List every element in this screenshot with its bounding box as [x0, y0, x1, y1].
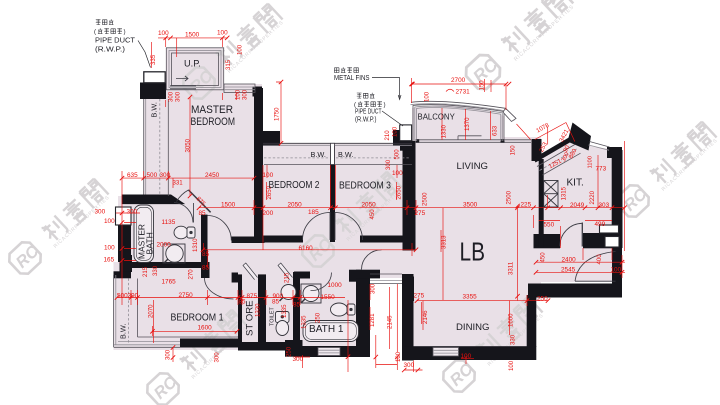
svg-text:1600: 1600 [508, 313, 515, 327]
svg-text:85: 85 [199, 210, 207, 217]
svg-text:2220: 2220 [589, 190, 596, 204]
svg-text:2731: 2731 [456, 88, 471, 95]
svg-text:1000: 1000 [328, 282, 343, 289]
svg-text:500: 500 [147, 172, 158, 179]
svg-text:275: 275 [415, 210, 426, 217]
svg-text:300: 300 [95, 208, 106, 215]
svg-text:KIT.: KIT. [567, 178, 584, 189]
svg-text:1281: 1281 [369, 313, 376, 327]
svg-text:773: 773 [596, 166, 607, 173]
svg-text:100: 100 [263, 172, 274, 179]
svg-text:1500: 1500 [221, 202, 236, 209]
svg-text:6160: 6160 [299, 245, 314, 252]
svg-text:2750: 2750 [179, 292, 194, 299]
svg-text:331: 331 [173, 180, 184, 187]
svg-text:B.W.: B.W. [150, 102, 159, 117]
svg-text:2145: 2145 [387, 315, 394, 329]
svg-text:275: 275 [414, 293, 425, 300]
svg-text:1135: 1135 [162, 219, 176, 226]
svg-text:1550: 1550 [321, 294, 336, 301]
svg-text:100: 100 [217, 30, 228, 37]
svg-text:300: 300 [404, 362, 415, 369]
svg-text:U.P.: U.P. [184, 59, 201, 69]
svg-text:DINING: DINING [456, 321, 490, 332]
svg-text:BEDROOM 2: BEDROOM 2 [269, 180, 320, 191]
svg-text:150: 150 [479, 80, 486, 91]
svg-text:3050: 3050 [185, 138, 192, 152]
svg-text:499: 499 [595, 221, 606, 228]
svg-text:2650: 2650 [396, 185, 403, 199]
svg-text:1765: 1765 [162, 279, 177, 286]
svg-text:300: 300 [175, 91, 182, 102]
svg-text:250: 250 [537, 296, 548, 303]
svg-text:303: 303 [599, 202, 610, 209]
svg-text:85: 85 [293, 302, 301, 309]
svg-text:300: 300 [370, 283, 377, 294]
svg-text:100: 100 [104, 218, 115, 225]
svg-text:215: 215 [284, 272, 291, 283]
svg-text:2146: 2146 [422, 310, 429, 324]
svg-text:): ) [124, 29, 126, 36]
svg-text:450: 450 [369, 209, 376, 220]
svg-text:330: 330 [152, 265, 159, 276]
svg-text:1750: 1750 [274, 107, 281, 121]
svg-text:635: 635 [127, 172, 138, 179]
svg-text:BEDROOM 1: BEDROOM 1 [171, 313, 224, 324]
svg-text:ST ORE: ST ORE [245, 300, 256, 336]
svg-text:315: 315 [225, 59, 232, 70]
svg-text:BATH: BATH [145, 232, 155, 254]
svg-text:335: 335 [150, 54, 157, 65]
svg-text:3500: 3500 [463, 201, 478, 208]
svg-text:1600: 1600 [198, 325, 213, 332]
svg-text:250: 250 [286, 346, 293, 357]
svg-text:100: 100 [104, 245, 115, 252]
svg-text:550: 550 [544, 222, 555, 229]
svg-text:85: 85 [202, 251, 210, 258]
svg-text:100: 100 [158, 30, 169, 37]
svg-text:300: 300 [128, 292, 139, 299]
svg-text:100: 100 [611, 267, 622, 274]
svg-text:BEDROOM 3: BEDROOM 3 [339, 181, 391, 192]
svg-text:500: 500 [117, 292, 128, 299]
svg-text:300: 300 [242, 89, 249, 100]
svg-text:LB: LB [460, 239, 486, 267]
svg-text:B.W.: B.W. [338, 150, 353, 159]
svg-text:1330: 1330 [441, 124, 448, 138]
svg-text:1370: 1370 [464, 117, 471, 131]
svg-text:1335: 1335 [301, 315, 308, 329]
svg-text:215: 215 [142, 266, 149, 277]
svg-text:2050: 2050 [288, 202, 303, 209]
svg-text:300: 300 [160, 172, 171, 179]
svg-text:150: 150 [510, 145, 517, 156]
svg-text:2049: 2049 [570, 202, 585, 209]
svg-text:(R.W.P.): (R.W.P.) [355, 117, 377, 124]
svg-text:300: 300 [127, 209, 138, 216]
svg-text:875: 875 [247, 293, 258, 300]
svg-text:300: 300 [293, 356, 304, 363]
svg-text:300: 300 [165, 349, 172, 360]
svg-text:3313: 3313 [441, 235, 448, 249]
svg-text:1330: 1330 [255, 303, 262, 317]
svg-text:BEDROOM: BEDROOM [191, 116, 236, 128]
svg-text:1310: 1310 [192, 238, 199, 252]
svg-text:3311: 3311 [508, 261, 515, 275]
svg-text:270: 270 [188, 269, 195, 280]
svg-text:100: 100 [508, 360, 515, 371]
svg-text:100: 100 [424, 91, 431, 102]
svg-text:100: 100 [395, 351, 402, 362]
svg-text:2070: 2070 [148, 304, 155, 318]
svg-text:2500: 2500 [422, 192, 429, 206]
svg-text:2500: 2500 [506, 190, 513, 204]
svg-text:2545: 2545 [561, 267, 576, 274]
svg-text:450: 450 [540, 252, 547, 263]
svg-text:100: 100 [235, 89, 242, 100]
svg-text:BATH 1: BATH 1 [309, 324, 344, 335]
svg-text:300: 300 [385, 159, 392, 170]
svg-text:210: 210 [384, 130, 391, 141]
svg-text:100: 100 [392, 170, 403, 177]
svg-text:200: 200 [263, 210, 274, 217]
svg-text:(R.W.P.): (R.W.P.) [95, 45, 126, 54]
svg-text:500: 500 [394, 149, 401, 160]
svg-text:165: 165 [104, 257, 115, 264]
svg-text:B.W.: B.W. [119, 324, 128, 339]
svg-text:225: 225 [521, 201, 532, 208]
svg-text:TOILET: TOILET [270, 307, 276, 326]
svg-text:MASTER: MASTER [191, 104, 233, 116]
svg-text:1500: 1500 [185, 32, 200, 39]
svg-text:85: 85 [272, 299, 280, 306]
svg-text:100: 100 [461, 353, 472, 360]
svg-text:B.W.: B.W. [311, 150, 326, 159]
svg-text:METAL FINS: METAL FINS [334, 73, 370, 82]
svg-text:2700: 2700 [451, 77, 466, 84]
svg-text:2000: 2000 [157, 241, 172, 248]
svg-text:85: 85 [202, 265, 210, 272]
svg-text:2450: 2450 [205, 172, 220, 179]
svg-text:1100: 1100 [588, 156, 594, 168]
svg-text:100: 100 [392, 126, 399, 137]
svg-text:BALCONY: BALCONY [418, 113, 456, 122]
svg-text:PIPE DUCT: PIPE DUCT [95, 36, 135, 45]
svg-text:1335: 1335 [281, 304, 288, 318]
svg-text:3355: 3355 [463, 294, 478, 301]
svg-text:300: 300 [168, 91, 175, 102]
svg-text:250: 250 [315, 312, 322, 323]
svg-text:400: 400 [596, 254, 603, 265]
svg-text:633: 633 [492, 125, 499, 136]
svg-text:PIPE DUCT: PIPE DUCT [355, 109, 382, 116]
svg-text:): ) [384, 102, 386, 109]
svg-text:2050: 2050 [362, 202, 377, 209]
svg-text:LIVING: LIVING [457, 160, 489, 171]
svg-text:100: 100 [237, 44, 244, 55]
svg-text:300: 300 [214, 352, 221, 363]
svg-text:185: 185 [308, 209, 319, 216]
svg-text:2400: 2400 [562, 257, 577, 264]
svg-text:330: 330 [510, 334, 517, 345]
